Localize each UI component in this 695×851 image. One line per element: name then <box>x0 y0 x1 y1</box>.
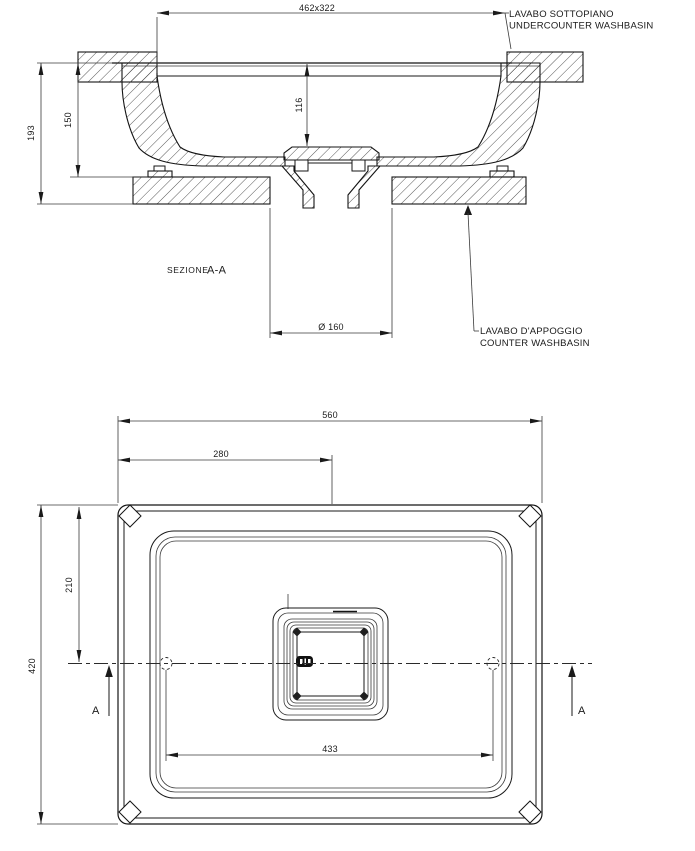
dim-holes-span: 433 <box>166 670 493 761</box>
drain-cover <box>284 147 379 160</box>
plan-outer-edge <box>118 505 542 824</box>
corner-chamfer-br <box>519 801 541 823</box>
label-counter-line1: LAVABO D'APPOGGIO <box>480 326 583 337</box>
foot-right <box>490 171 514 177</box>
section-marker-left-letter: A <box>92 705 100 717</box>
section-marker-left: A <box>92 665 113 717</box>
label-counter-line2: COUNTER WASHBASIN <box>480 338 590 349</box>
slab-lower-right <box>392 177 526 204</box>
drain-funnel-right <box>348 166 380 208</box>
dim-plan-width-value: 560 <box>322 410 338 420</box>
dim-basin-height: 150 <box>63 63 78 177</box>
dim-plan-halfheight: 210 <box>37 505 118 662</box>
dim-top-opening-value: 462x322 <box>299 3 335 13</box>
dim-basin-height-value: 150 <box>63 112 73 128</box>
technical-drawing: 462x322 116 150 193 Ø 160 SEZIONE A-A <box>0 0 695 851</box>
foot-left <box>148 171 172 177</box>
dim-bowl-depth-value: 116 <box>294 98 304 113</box>
section-arrow-right <box>568 665 576 677</box>
dim-plan-width: 560 <box>118 410 542 503</box>
drain-corner-bl <box>293 692 302 701</box>
corner-chamfer-tr <box>519 505 541 527</box>
dim-plan-height-value: 420 <box>27 658 37 674</box>
section-arrow-left <box>105 665 113 677</box>
dim-drain-hole: Ø 160 <box>270 208 392 338</box>
basin-wall-right <box>377 63 540 166</box>
drain-corner-br <box>360 692 369 701</box>
section-title-cut: A-A <box>207 265 227 277</box>
dim-drain-hole-value: Ø 160 <box>318 322 344 332</box>
dim-holes-span-value: 433 <box>322 744 338 754</box>
label-counter: LAVABO D'APPOGGIO COUNTER WASHBASIN <box>464 205 590 349</box>
section-marker-right: A <box>568 665 586 717</box>
dim-total-height: 193 <box>26 63 41 204</box>
drain-logo <box>296 656 313 667</box>
drain-corner-tl <box>293 628 302 637</box>
label-undercounter-line1: LAVABO SOTTOPIANO <box>509 9 614 20</box>
dim-plan-halfwidth: 280 <box>118 449 332 504</box>
label-undercounter: LAVABO SOTTOPIANO UNDERCOUNTER WASHBASIN <box>505 9 653 32</box>
drain-funnel-left <box>282 166 314 208</box>
dim-plan-height: 420 <box>27 505 118 824</box>
section-title: SEZIONE A-A <box>167 265 227 277</box>
dim-total-height-value: 193 <box>26 125 36 141</box>
plan-view: 560 280 210 420 433 <box>27 410 592 824</box>
section-view: 462x322 116 150 193 Ø 160 SEZIONE A-A <box>26 3 653 349</box>
drain-corner-tr <box>360 628 369 637</box>
plan-rim-inner-edge <box>124 511 536 818</box>
dim-plan-halfwidth-value: 280 <box>213 449 229 459</box>
basin-wall-left <box>122 63 285 166</box>
section-title-word: SEZIONE <box>167 265 209 275</box>
label-undercounter-line2: UNDERCOUNTER WASHBASIN <box>509 21 653 32</box>
slab-lower-left <box>133 177 270 204</box>
drain-plan <box>273 608 388 720</box>
bowl-edge-1 <box>150 531 512 798</box>
corner-chamfer-bl <box>119 801 141 823</box>
dim-plan-halfheight-value: 210 <box>64 577 74 593</box>
section-marker-right-letter: A <box>578 705 586 717</box>
corner-chamfer-tl <box>119 505 141 527</box>
